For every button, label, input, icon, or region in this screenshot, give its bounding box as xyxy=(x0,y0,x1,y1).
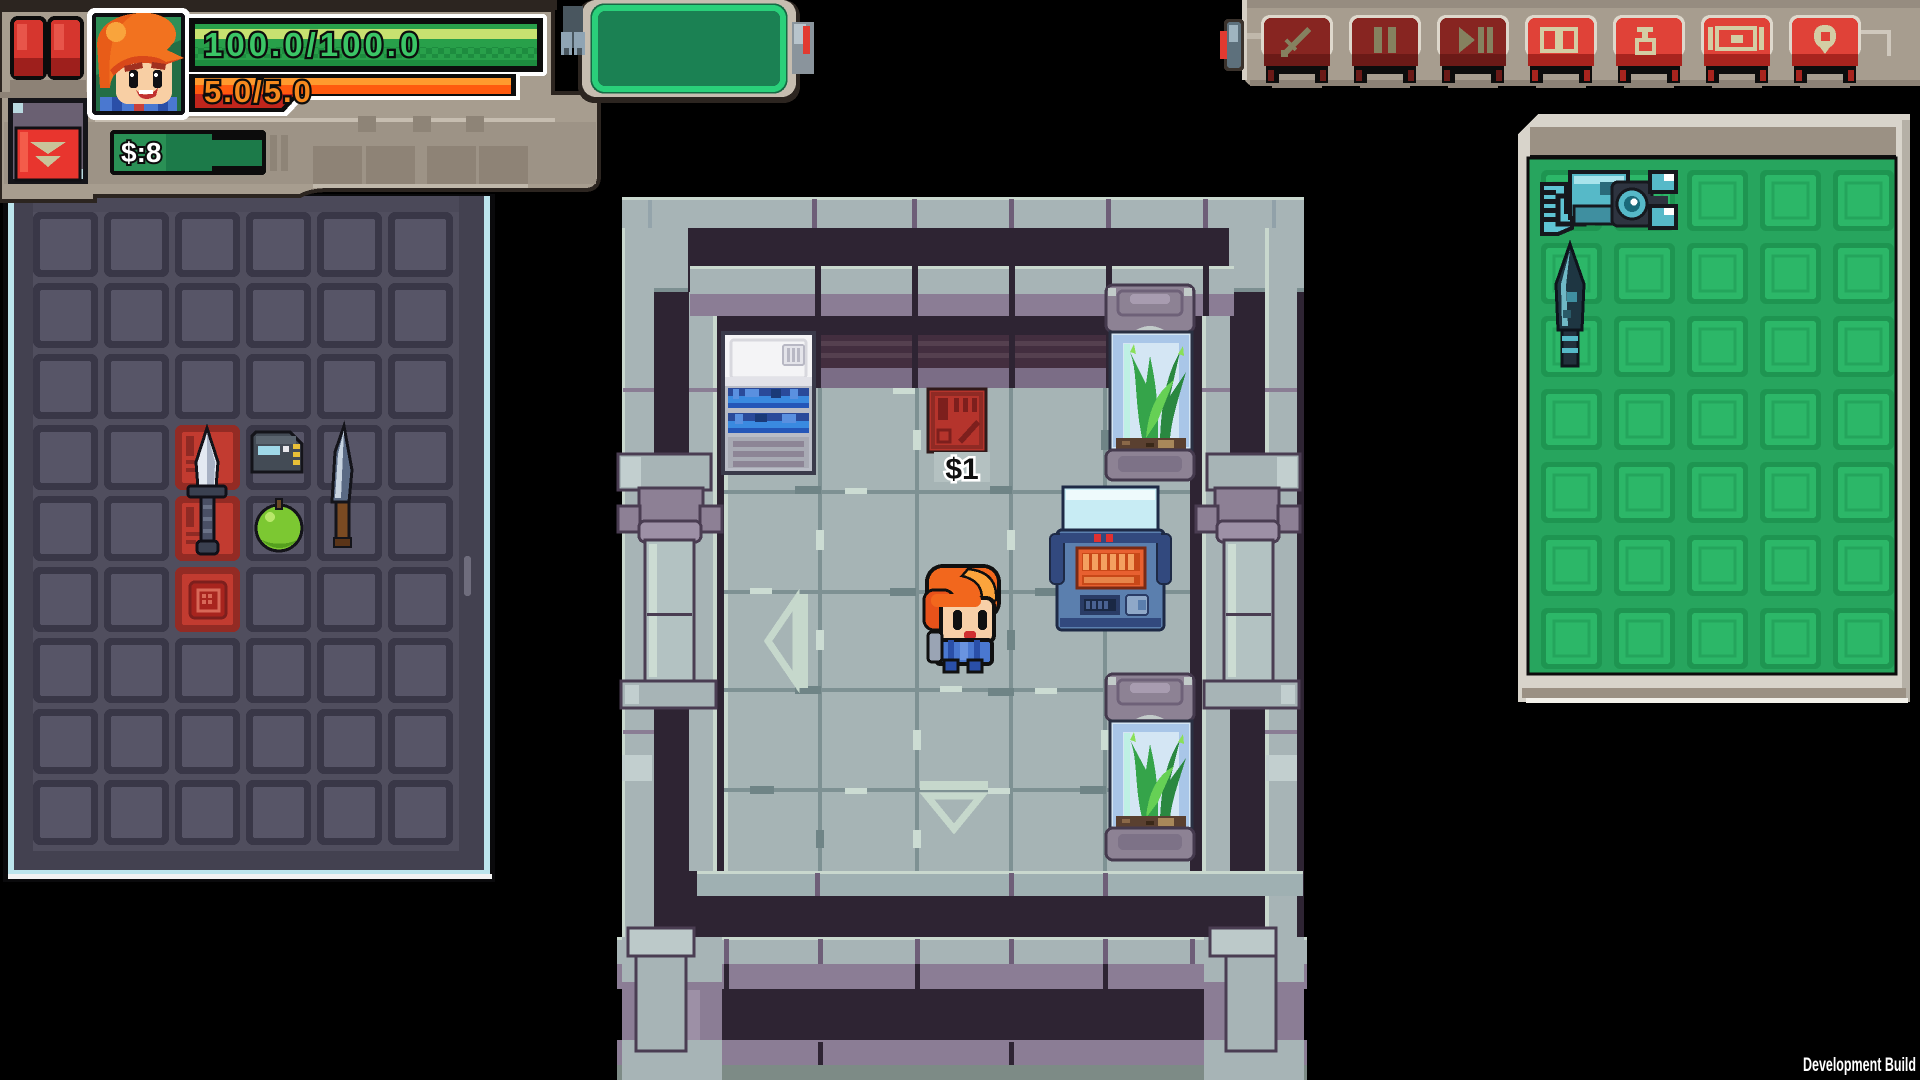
svg-text:Development Build: Development Build xyxy=(1803,1055,1916,1076)
svg-text:$:8: $:8 xyxy=(121,137,161,168)
svg-text:100.0/100.0: 100.0/100.0 xyxy=(204,26,422,63)
svg-text:5.0/5.0: 5.0/5.0 xyxy=(204,74,313,109)
svg-text:$1: $1 xyxy=(945,453,978,486)
